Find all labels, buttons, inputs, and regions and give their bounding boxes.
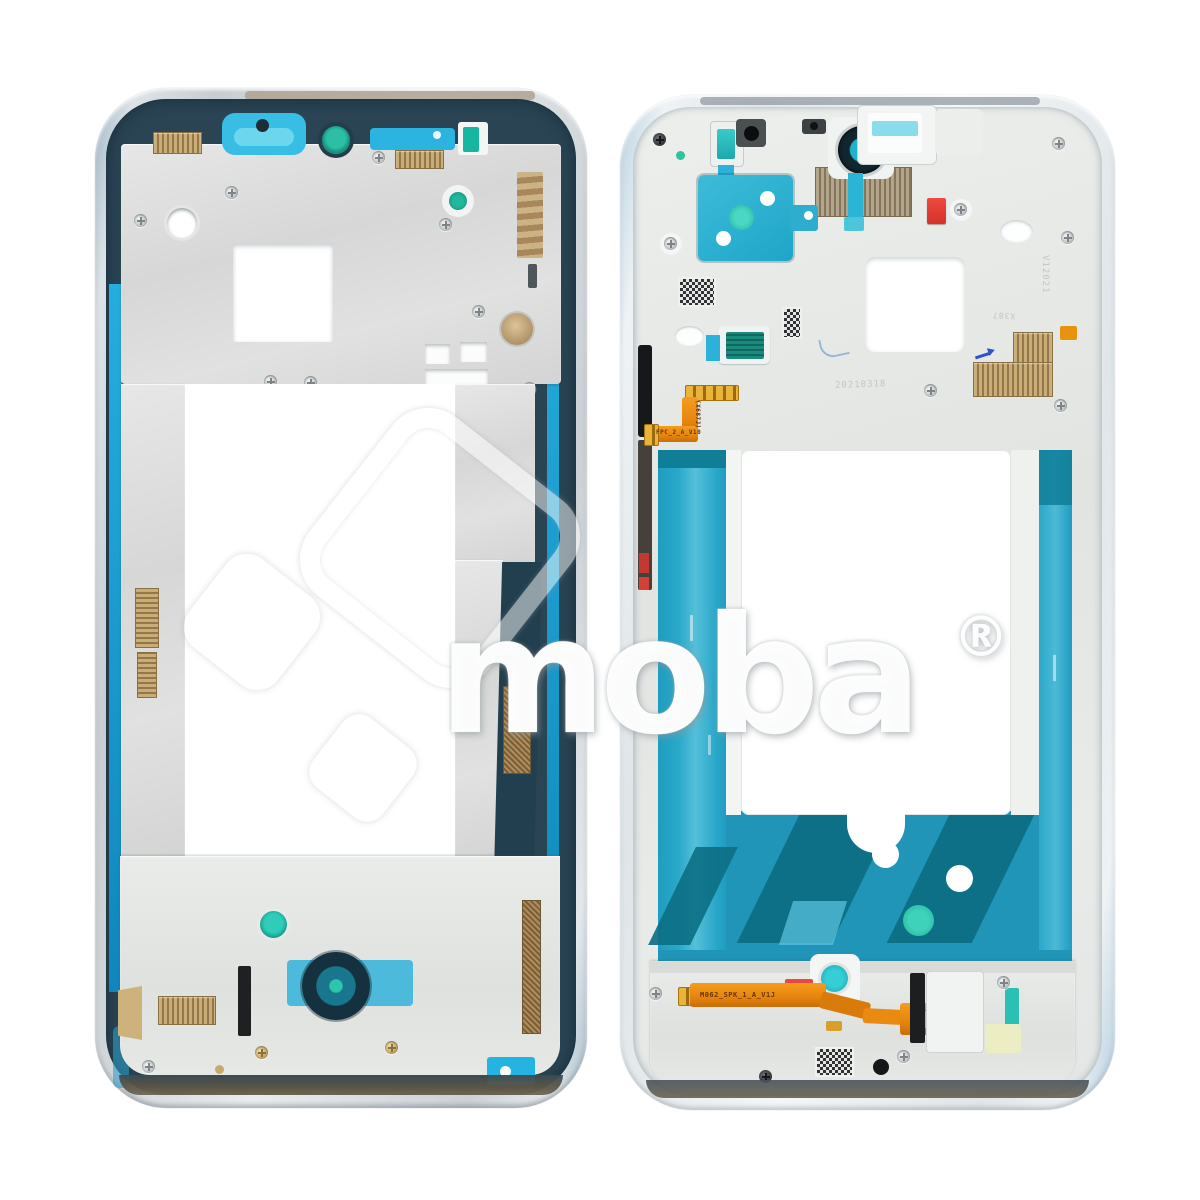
gold-contact-dot: [215, 1065, 224, 1074]
side-flex-label: FPC_2_A_V10: [656, 429, 701, 436]
pale-yellow-pad: [985, 1024, 1021, 1053]
datamatrix-small: [782, 307, 802, 339]
earpiece-screw-hole: [256, 119, 269, 132]
antenna-mesh-top-left: [153, 132, 202, 154]
microphone-hole: [873, 1059, 889, 1075]
dark-clip: [528, 264, 537, 288]
screw: [142, 1060, 155, 1073]
red-side-sticker-2: [639, 577, 649, 590]
screw: [954, 203, 967, 216]
brass-contact-pad: [501, 313, 533, 345]
flash-window-teal: [717, 129, 735, 159]
bottom-plate-ledge: [650, 961, 1075, 973]
white-oval-hole: [1000, 220, 1033, 243]
side-flex-code: (X687J): [694, 400, 701, 429]
mint-circle: [729, 205, 754, 230]
metal-rail-right-upper: [455, 384, 535, 562]
cyan-tab: [706, 335, 720, 361]
screw: [134, 214, 147, 227]
camera-hole: [744, 126, 759, 141]
bronze-mesh-patch-1: [503, 686, 531, 774]
product-photo-phone-midframes: 20210318 V12021 X387 FPC_2_A_V10 (X687J): [0, 0, 1200, 1200]
etched-date: 20210318: [835, 379, 887, 391]
speaker-mesh: [158, 996, 216, 1025]
screw-gold: [385, 1041, 398, 1054]
adhesive-band-top: [370, 128, 455, 150]
plate-round-hole: [167, 208, 197, 238]
etched-code-vertical: V12021: [1040, 255, 1050, 294]
white-oval-hole: [675, 326, 704, 346]
sensor-sticker-teal-window: [463, 127, 479, 152]
teal-mesh-window: [726, 332, 764, 359]
bottom-flex-label: M062_SPK_1_A_V1J: [700, 991, 775, 999]
rail-mesh-patch-1: [135, 588, 159, 648]
antenna-mesh-top-right: [395, 150, 444, 169]
front-camera-hole: [322, 126, 350, 154]
plate-square-cutout: [233, 244, 333, 342]
copper-foil-strip: [517, 172, 543, 258]
strip-dash: [1053, 655, 1056, 681]
screw-dark: [653, 133, 666, 146]
screw: [897, 1050, 910, 1063]
rail-mesh-patch-2: [137, 652, 157, 698]
screw: [439, 218, 452, 231]
sensor-hole-teal: [260, 911, 287, 938]
datamatrix-label: [678, 277, 716, 307]
plate-cutout-small-2: [460, 342, 487, 362]
square-cutout: [865, 257, 965, 352]
screw: [1052, 137, 1065, 150]
red-side-sticker-1: [639, 553, 649, 573]
gold-antenna-plate: [118, 986, 142, 1040]
top-module-side: [935, 109, 983, 155]
orange-component: [1060, 326, 1077, 340]
bronze-mesh-strip-right: [522, 900, 541, 1034]
screw: [372, 151, 385, 164]
gold-mesh-L-bottom: [973, 362, 1053, 397]
screw: [1054, 399, 1067, 412]
black-slot: [238, 966, 251, 1036]
white-spine-right: [1011, 450, 1039, 815]
camera-through-hole: [449, 192, 467, 210]
midframe-front-view: [95, 88, 587, 1108]
gold-mesh-L-top: [1013, 332, 1053, 364]
strip-dash: [708, 735, 711, 755]
screw: [924, 384, 937, 397]
speaker-module-bay: [926, 971, 984, 1053]
patch-hole-dot: [716, 231, 731, 246]
screw: [225, 186, 238, 199]
black-slot: [910, 973, 925, 1043]
screw: [1061, 231, 1074, 244]
plate-cutout-small-1: [425, 344, 450, 364]
gold-tab: [826, 1021, 842, 1031]
bottom-adhesive-band: [646, 1080, 1089, 1098]
adhesive-drop-strip: [848, 173, 863, 221]
screw: [997, 976, 1010, 989]
patch-hole-dot: [760, 191, 775, 206]
patch-hole-dot: [804, 211, 813, 220]
screw: [649, 987, 662, 1000]
display-window-opening: [185, 384, 455, 856]
etched-code-block: X387: [992, 310, 1016, 320]
top-rail-insert: [700, 97, 1040, 105]
top-module-cyan-strip: [872, 121, 918, 136]
mint-circle: [903, 905, 934, 936]
metal-shield-plate-top: [121, 144, 561, 384]
bottom-adhesive-band: [119, 1075, 563, 1095]
adhesive-hole-dot: [946, 865, 973, 892]
red-sticker-top: [927, 198, 946, 224]
adhesive-strip-right-cap: [1039, 450, 1072, 505]
adhesive-strip-left-cap: [658, 450, 726, 468]
fingerprint-lens: [302, 952, 370, 1020]
adhesive-hole-dot: [433, 131, 441, 139]
strip-dash: [690, 615, 693, 641]
screw: [472, 305, 485, 318]
mint-dot: [676, 151, 685, 160]
datamatrix-label: [815, 1047, 854, 1077]
midframe-back-view: 20210318 V12021 X387 FPC_2_A_V10 (X687J): [620, 95, 1115, 1110]
adhesive-strip-right: [1039, 450, 1072, 950]
battery-window-opening: [741, 450, 1011, 815]
adhesive-drop-pad: [844, 217, 864, 231]
white-spine-left: [726, 450, 741, 815]
screw-gold: [255, 1046, 268, 1059]
screw: [664, 237, 677, 250]
flex-segment: [863, 1008, 904, 1025]
sensor-hole: [810, 122, 818, 130]
